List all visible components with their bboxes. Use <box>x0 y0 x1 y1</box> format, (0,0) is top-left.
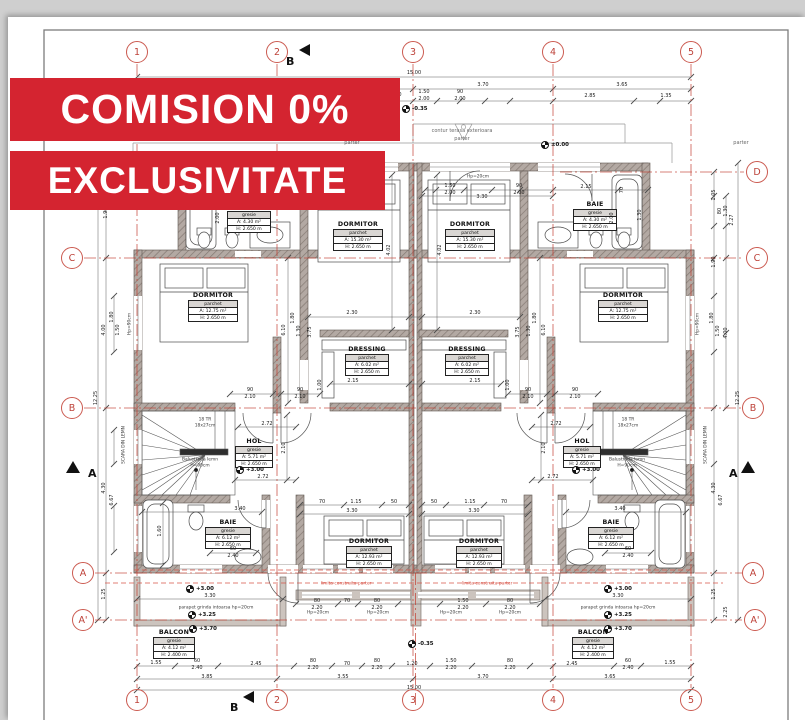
floor-plan-screenshot: 1234512345CBAA'DCBAA'BBAABAIEgresieA: 4.… <box>0 0 805 720</box>
staircase <box>142 411 235 495</box>
walls <box>134 163 694 573</box>
promo-banner-exclusivitate: EXCLUSIVITATE <box>10 151 385 210</box>
banner-text: EXCLUSIVITATE <box>48 160 347 202</box>
banner-text: COMISION 0% <box>61 86 350 133</box>
promo-banner-comision: COMISION 0% <box>10 78 400 141</box>
parapets <box>134 573 694 626</box>
